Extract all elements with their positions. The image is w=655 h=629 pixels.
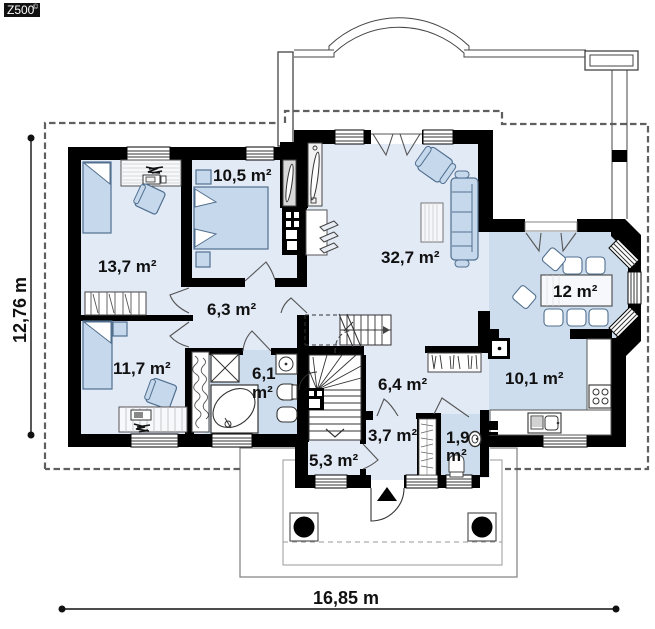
svg-text:6,3 m²: 6,3 m²: [207, 300, 256, 319]
svg-text:10,1 m²: 10,1 m²: [505, 369, 564, 388]
svg-text:6,1: 6,1: [252, 364, 276, 383]
svg-text:m²: m²: [446, 446, 467, 465]
svg-text:12 m²: 12 m²: [553, 282, 598, 301]
svg-text:m²: m²: [252, 383, 273, 402]
svg-text:1,9: 1,9: [446, 428, 470, 447]
svg-text:12,76 m: 12,76 m: [10, 277, 30, 343]
svg-text:©: ©: [33, 3, 39, 11]
svg-text:32,7 m²: 32,7 m²: [381, 248, 440, 267]
svg-text:13,7 m²: 13,7 m²: [98, 257, 157, 276]
svg-text:Z500: Z500: [7, 3, 35, 17]
svg-text:10,5 m²: 10,5 m²: [213, 166, 272, 185]
svg-text:16,85 m: 16,85 m: [313, 588, 379, 608]
svg-text:11,7 m²: 11,7 m²: [113, 359, 171, 378]
svg-text:6,4 m²: 6,4 m²: [378, 375, 427, 394]
svg-text:3,7 m²: 3,7 m²: [368, 426, 417, 445]
svg-text:5,3 m²: 5,3 m²: [309, 451, 358, 470]
